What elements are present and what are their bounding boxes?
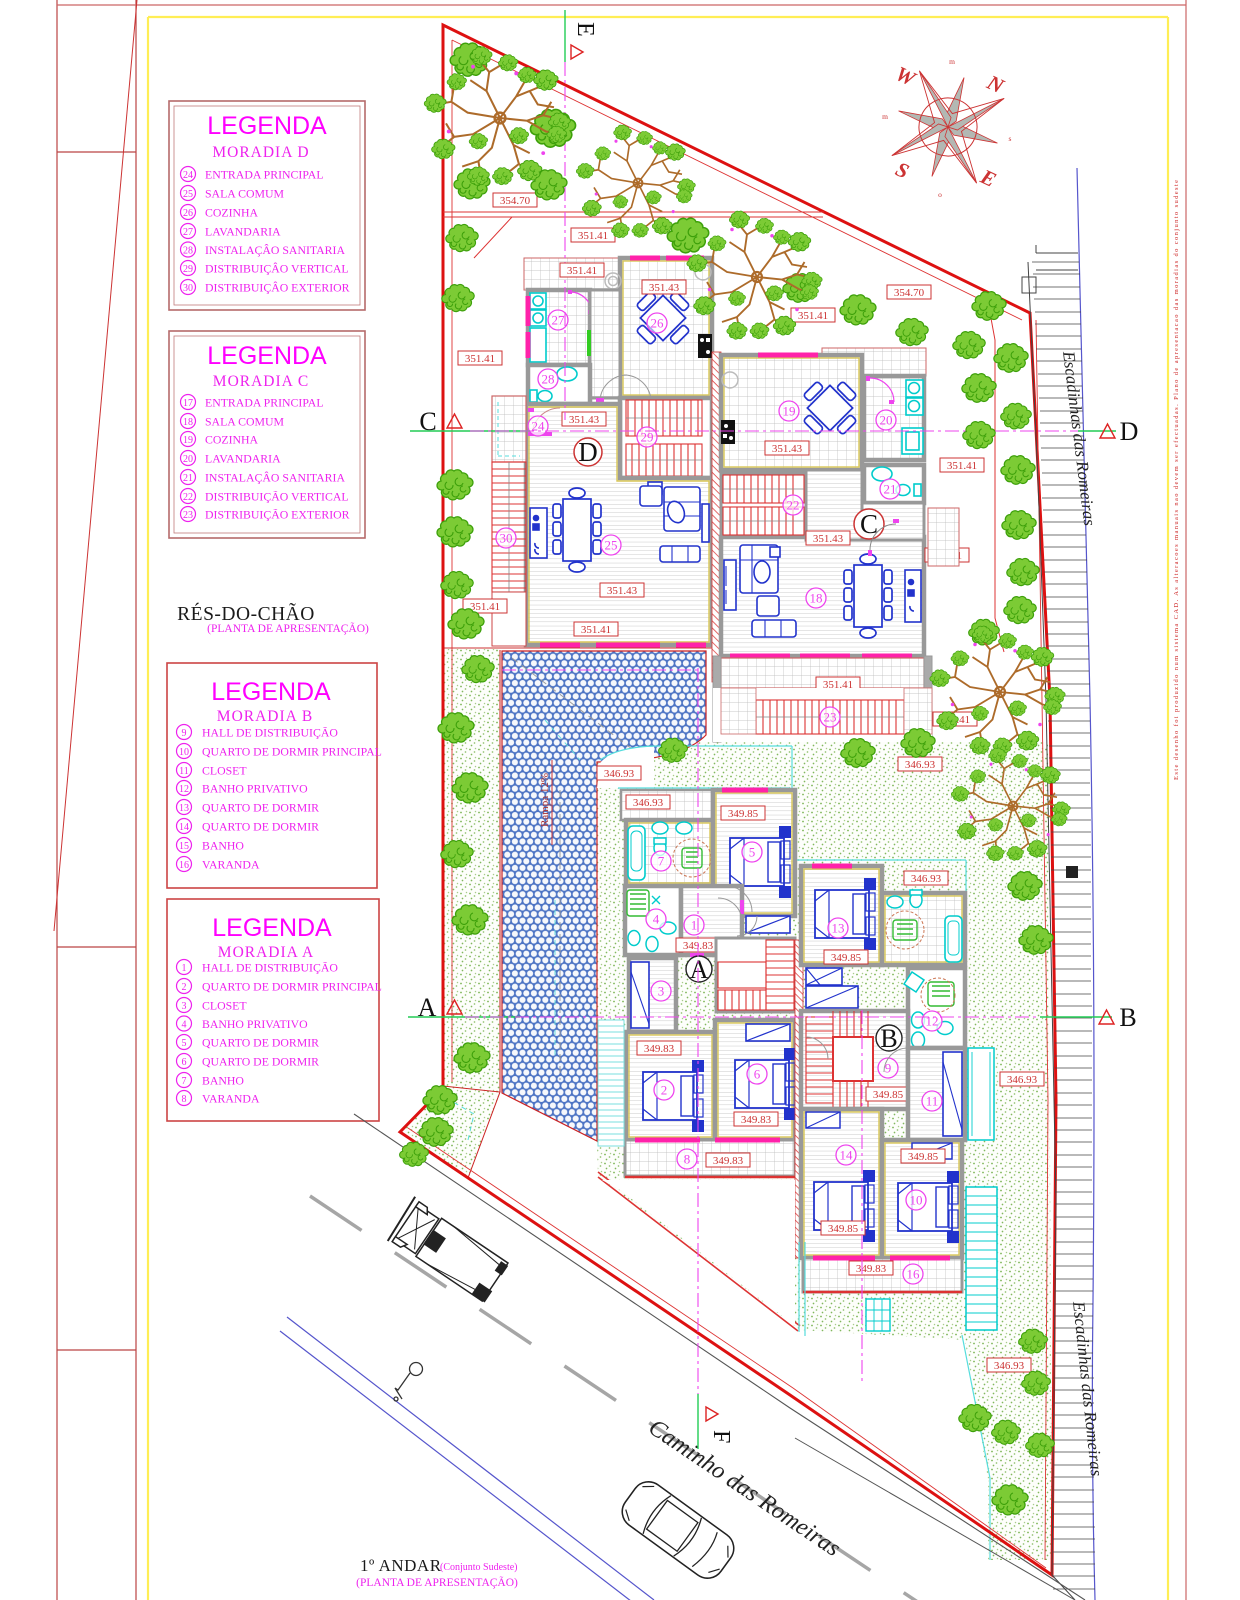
svg-text:QUARTO DE DORMIR: QUARTO DE DORMIR bbox=[202, 801, 319, 815]
svg-text:QUARTO DE DORMIR: QUARTO DE DORMIR bbox=[202, 1036, 319, 1050]
svg-text:10: 10 bbox=[179, 747, 189, 758]
svg-text:INSTALAÇÂO SANITARIA: INSTALAÇÂO SANITARIA bbox=[205, 471, 345, 485]
svg-text:Rampa 12%: Rampa 12% bbox=[539, 773, 551, 827]
svg-text:351.41: 351.41 bbox=[578, 230, 608, 242]
svg-text:349.83: 349.83 bbox=[741, 1114, 772, 1126]
svg-text:o: o bbox=[938, 190, 942, 199]
svg-text:m: m bbox=[882, 112, 888, 121]
svg-text:346.93: 346.93 bbox=[1007, 1074, 1038, 1086]
svg-text:3: 3 bbox=[658, 984, 665, 999]
svg-text:351.41: 351.41 bbox=[567, 265, 597, 277]
svg-text:8: 8 bbox=[182, 1094, 187, 1105]
svg-text:DISTRIBUIÇÃO VERTICAL: DISTRIBUIÇÃO VERTICAL bbox=[205, 490, 349, 504]
svg-text:VARANDA: VARANDA bbox=[202, 1092, 260, 1106]
svg-text:A: A bbox=[690, 955, 709, 984]
svg-text:349.85: 349.85 bbox=[908, 1151, 939, 1163]
svg-text:B: B bbox=[880, 1024, 897, 1053]
svg-text:18: 18 bbox=[183, 417, 193, 428]
svg-text:LEGENDA: LEGENDA bbox=[207, 112, 327, 140]
svg-text:13: 13 bbox=[832, 921, 845, 936]
svg-text:351.41: 351.41 bbox=[798, 310, 828, 322]
svg-text:22: 22 bbox=[183, 492, 193, 503]
svg-text:B: B bbox=[1119, 1003, 1136, 1032]
svg-text:BANHO: BANHO bbox=[202, 839, 244, 853]
svg-text:12: 12 bbox=[926, 1014, 939, 1029]
svg-text:7: 7 bbox=[658, 854, 665, 869]
svg-text:29: 29 bbox=[183, 264, 193, 275]
svg-text:BANHO PRIVATIVO: BANHO PRIVATIVO bbox=[202, 782, 308, 796]
svg-text:LEGENDA: LEGENDA bbox=[212, 914, 332, 942]
svg-text:7: 7 bbox=[182, 1076, 187, 1087]
svg-text:28: 28 bbox=[183, 246, 193, 257]
svg-text:351.43: 351.43 bbox=[772, 443, 803, 455]
svg-text:HALL DE DISTRIBUIÇÃO: HALL DE DISTRIBUIÇÃO bbox=[202, 726, 338, 740]
svg-text:10: 10 bbox=[910, 1193, 923, 1208]
svg-text:11: 11 bbox=[179, 766, 189, 777]
svg-text:351.41: 351.41 bbox=[470, 601, 500, 613]
svg-text:8: 8 bbox=[684, 1152, 691, 1167]
svg-text:ENTRADA PRINCIPAL: ENTRADA PRINCIPAL bbox=[205, 168, 324, 182]
svg-text:29: 29 bbox=[641, 430, 654, 445]
svg-text:346.93: 346.93 bbox=[911, 873, 942, 885]
svg-text:MORADIA A: MORADIA A bbox=[218, 944, 314, 961]
svg-text:5: 5 bbox=[749, 845, 756, 860]
svg-text:COZINHA: COZINHA bbox=[205, 433, 259, 447]
svg-text:s: s bbox=[1009, 134, 1012, 143]
svg-text:346.93: 346.93 bbox=[994, 1360, 1025, 1372]
svg-text:21: 21 bbox=[183, 473, 193, 484]
svg-text:17: 17 bbox=[183, 398, 193, 409]
svg-text:(Conjunto Sudeste): (Conjunto Sudeste) bbox=[440, 1562, 518, 1573]
svg-text:E: E bbox=[572, 22, 598, 37]
svg-text:3: 3 bbox=[182, 1001, 187, 1012]
svg-text:354.70: 354.70 bbox=[894, 287, 925, 299]
svg-text:2: 2 bbox=[661, 1083, 668, 1098]
svg-text:26: 26 bbox=[651, 316, 665, 331]
svg-text:SALA COMUM: SALA COMUM bbox=[205, 187, 285, 201]
svg-text:Este desenho foi produzido num: Este desenho foi produzido num sistema C… bbox=[1173, 180, 1180, 780]
svg-text:D: D bbox=[1120, 417, 1139, 446]
svg-text:HALL DE DISTRIBUIÇÃO: HALL DE DISTRIBUIÇÃO bbox=[202, 961, 338, 975]
svg-text:1º ANDAR: 1º ANDAR bbox=[360, 1556, 442, 1575]
svg-text:14: 14 bbox=[840, 1148, 854, 1163]
svg-text:1: 1 bbox=[691, 918, 698, 933]
svg-text:28: 28 bbox=[542, 372, 555, 387]
svg-text:LEGENDA: LEGENDA bbox=[207, 342, 327, 370]
svg-text:349.85: 349.85 bbox=[831, 952, 862, 964]
svg-text:CLOSET: CLOSET bbox=[202, 999, 247, 1013]
svg-text:346.93: 346.93 bbox=[633, 797, 664, 809]
svg-text:351.41: 351.41 bbox=[581, 624, 611, 636]
svg-text:D: D bbox=[578, 437, 598, 467]
svg-text:LEGENDA: LEGENDA bbox=[211, 678, 331, 706]
svg-text:6: 6 bbox=[182, 1057, 187, 1068]
svg-text:19: 19 bbox=[783, 404, 796, 419]
svg-text:349.85: 349.85 bbox=[873, 1089, 904, 1101]
svg-text:DISTRIBUIÇÂO EXTERIOR: DISTRIBUIÇÂO EXTERIOR bbox=[205, 281, 350, 295]
svg-text:BANHO: BANHO bbox=[202, 1074, 244, 1088]
svg-text:351.43: 351.43 bbox=[569, 414, 600, 426]
svg-text:m: m bbox=[949, 57, 955, 66]
svg-text:351.41: 351.41 bbox=[465, 353, 495, 365]
svg-text:MORADIA B: MORADIA B bbox=[217, 708, 313, 725]
svg-text:14: 14 bbox=[179, 822, 189, 833]
svg-text:27: 27 bbox=[552, 313, 566, 328]
svg-text:20: 20 bbox=[880, 413, 893, 428]
svg-text:QUARTO DE DORMIR: QUARTO DE DORMIR bbox=[202, 1055, 319, 1069]
svg-text:25: 25 bbox=[605, 538, 618, 553]
svg-text:LAVANDARIA: LAVANDARIA bbox=[205, 452, 281, 466]
svg-text:INSTALAÇÂO SANITARIA: INSTALAÇÂO SANITARIA bbox=[205, 243, 345, 257]
svg-text:18: 18 bbox=[810, 591, 823, 606]
svg-text:21: 21 bbox=[884, 482, 897, 497]
svg-text:6: 6 bbox=[754, 1067, 761, 1082]
svg-text:351.43: 351.43 bbox=[649, 282, 680, 294]
svg-text:23: 23 bbox=[183, 510, 193, 521]
svg-text:DISTRIBUIÇÃO EXTERIOR: DISTRIBUIÇÃO EXTERIOR bbox=[205, 508, 350, 522]
svg-text:1: 1 bbox=[182, 963, 187, 974]
svg-text:27: 27 bbox=[183, 227, 193, 238]
svg-text:(PLANTA DE APRESENTAÇÃO): (PLANTA DE APRESENTAÇÃO) bbox=[356, 1575, 518, 1589]
svg-text:5: 5 bbox=[182, 1038, 187, 1049]
svg-text:13: 13 bbox=[179, 803, 189, 814]
svg-text:19: 19 bbox=[183, 435, 193, 446]
svg-text:CLOSET: CLOSET bbox=[202, 764, 247, 778]
svg-text:351.43: 351.43 bbox=[607, 585, 638, 597]
svg-text:QUARTO DE DORMIR: QUARTO DE DORMIR bbox=[202, 820, 319, 834]
svg-text:QUARTO DE DORMIR PRINCIPAL: QUARTO DE DORMIR PRINCIPAL bbox=[202, 745, 382, 759]
svg-text:30: 30 bbox=[500, 531, 513, 546]
svg-text:ENTRADA PRINCIPAL: ENTRADA PRINCIPAL bbox=[205, 396, 324, 410]
svg-text:349.83: 349.83 bbox=[644, 1043, 675, 1055]
svg-text:349.85: 349.85 bbox=[828, 1223, 859, 1235]
svg-text:COZINHA: COZINHA bbox=[205, 206, 259, 220]
svg-text:25: 25 bbox=[183, 189, 193, 200]
svg-text:16: 16 bbox=[907, 1267, 921, 1282]
svg-text:346.93: 346.93 bbox=[604, 768, 635, 780]
svg-text:24: 24 bbox=[183, 170, 193, 181]
svg-text:346.93: 346.93 bbox=[905, 759, 936, 771]
svg-text:SALA COMUM: SALA COMUM bbox=[205, 415, 285, 429]
svg-text:F: F bbox=[708, 1430, 734, 1443]
svg-text:349.83: 349.83 bbox=[856, 1263, 887, 1275]
svg-text:MORADIA D: MORADIA D bbox=[212, 144, 309, 161]
svg-text:4: 4 bbox=[653, 912, 660, 927]
svg-text:351.43: 351.43 bbox=[813, 533, 844, 545]
svg-text:9: 9 bbox=[182, 728, 187, 739]
svg-text:16: 16 bbox=[179, 860, 189, 871]
svg-text:DISTRIBUIÇÂO VERTICAL: DISTRIBUIÇÂO VERTICAL bbox=[205, 262, 349, 276]
svg-text:VARANDA: VARANDA bbox=[202, 858, 260, 872]
svg-text:349.85: 349.85 bbox=[728, 808, 759, 820]
svg-text:22: 22 bbox=[787, 498, 800, 513]
svg-text:4: 4 bbox=[182, 1020, 187, 1031]
svg-text:23: 23 bbox=[824, 710, 837, 725]
svg-text:351.41: 351.41 bbox=[947, 460, 977, 472]
svg-text:RÉS-DO-CHÃO: RÉS-DO-CHÃO bbox=[177, 603, 315, 625]
svg-text:12: 12 bbox=[179, 784, 189, 795]
svg-text:15: 15 bbox=[179, 841, 189, 852]
svg-text:(PLANTA DE APRESENTAÇÃO): (PLANTA DE APRESENTAÇÃO) bbox=[207, 621, 369, 635]
svg-text:BANHO PRIVATIVO: BANHO PRIVATIVO bbox=[202, 1017, 308, 1031]
svg-text:MORADIA C: MORADIA C bbox=[213, 373, 309, 390]
svg-text:354.70: 354.70 bbox=[500, 195, 531, 207]
svg-text:LAVANDARIA: LAVANDARIA bbox=[205, 225, 281, 239]
svg-text:20: 20 bbox=[183, 454, 193, 465]
svg-text:26: 26 bbox=[183, 208, 193, 219]
svg-text:349.83: 349.83 bbox=[713, 1155, 744, 1167]
svg-text:QUARTO DE DORMIR PRINCIPAL: QUARTO DE DORMIR PRINCIPAL bbox=[202, 980, 382, 994]
svg-text:2: 2 bbox=[182, 982, 187, 993]
svg-text:11: 11 bbox=[926, 1094, 939, 1109]
svg-text:30: 30 bbox=[183, 283, 193, 294]
